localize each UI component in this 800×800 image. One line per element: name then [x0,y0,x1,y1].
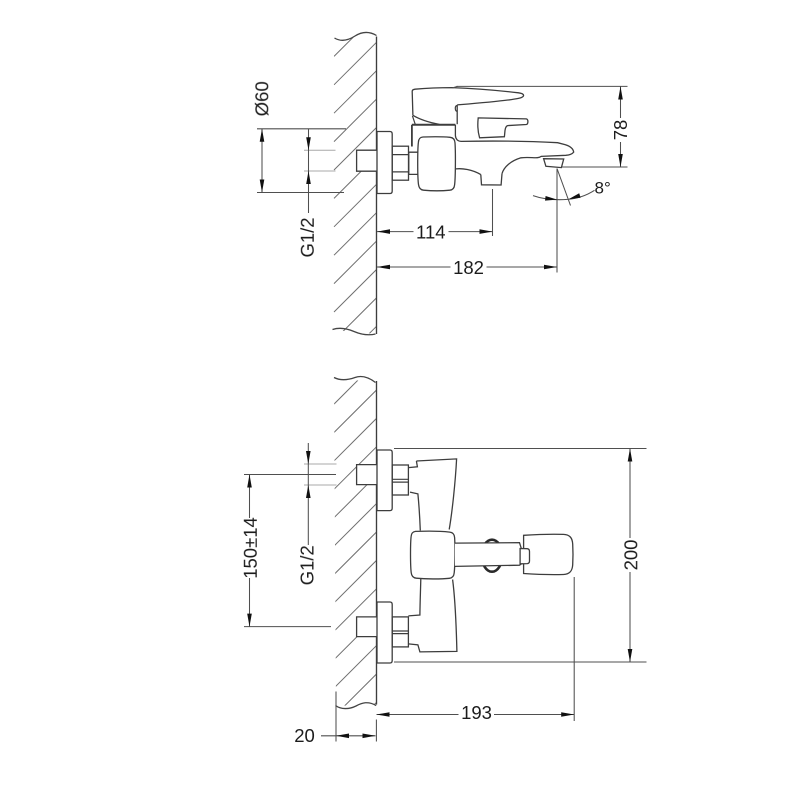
svg-text:200: 200 [620,540,641,571]
svg-text:G1/2: G1/2 [297,217,318,257]
svg-text:G1/2: G1/2 [297,545,318,585]
svg-text:Ø60: Ø60 [251,81,272,116]
svg-text:20: 20 [294,725,315,746]
svg-text:193: 193 [461,702,492,723]
svg-text:78: 78 [610,120,631,141]
svg-text:182: 182 [453,257,484,278]
svg-text:8°: 8° [595,179,611,198]
svg-text:114: 114 [416,221,446,242]
svg-text:150±14: 150±14 [240,517,261,579]
